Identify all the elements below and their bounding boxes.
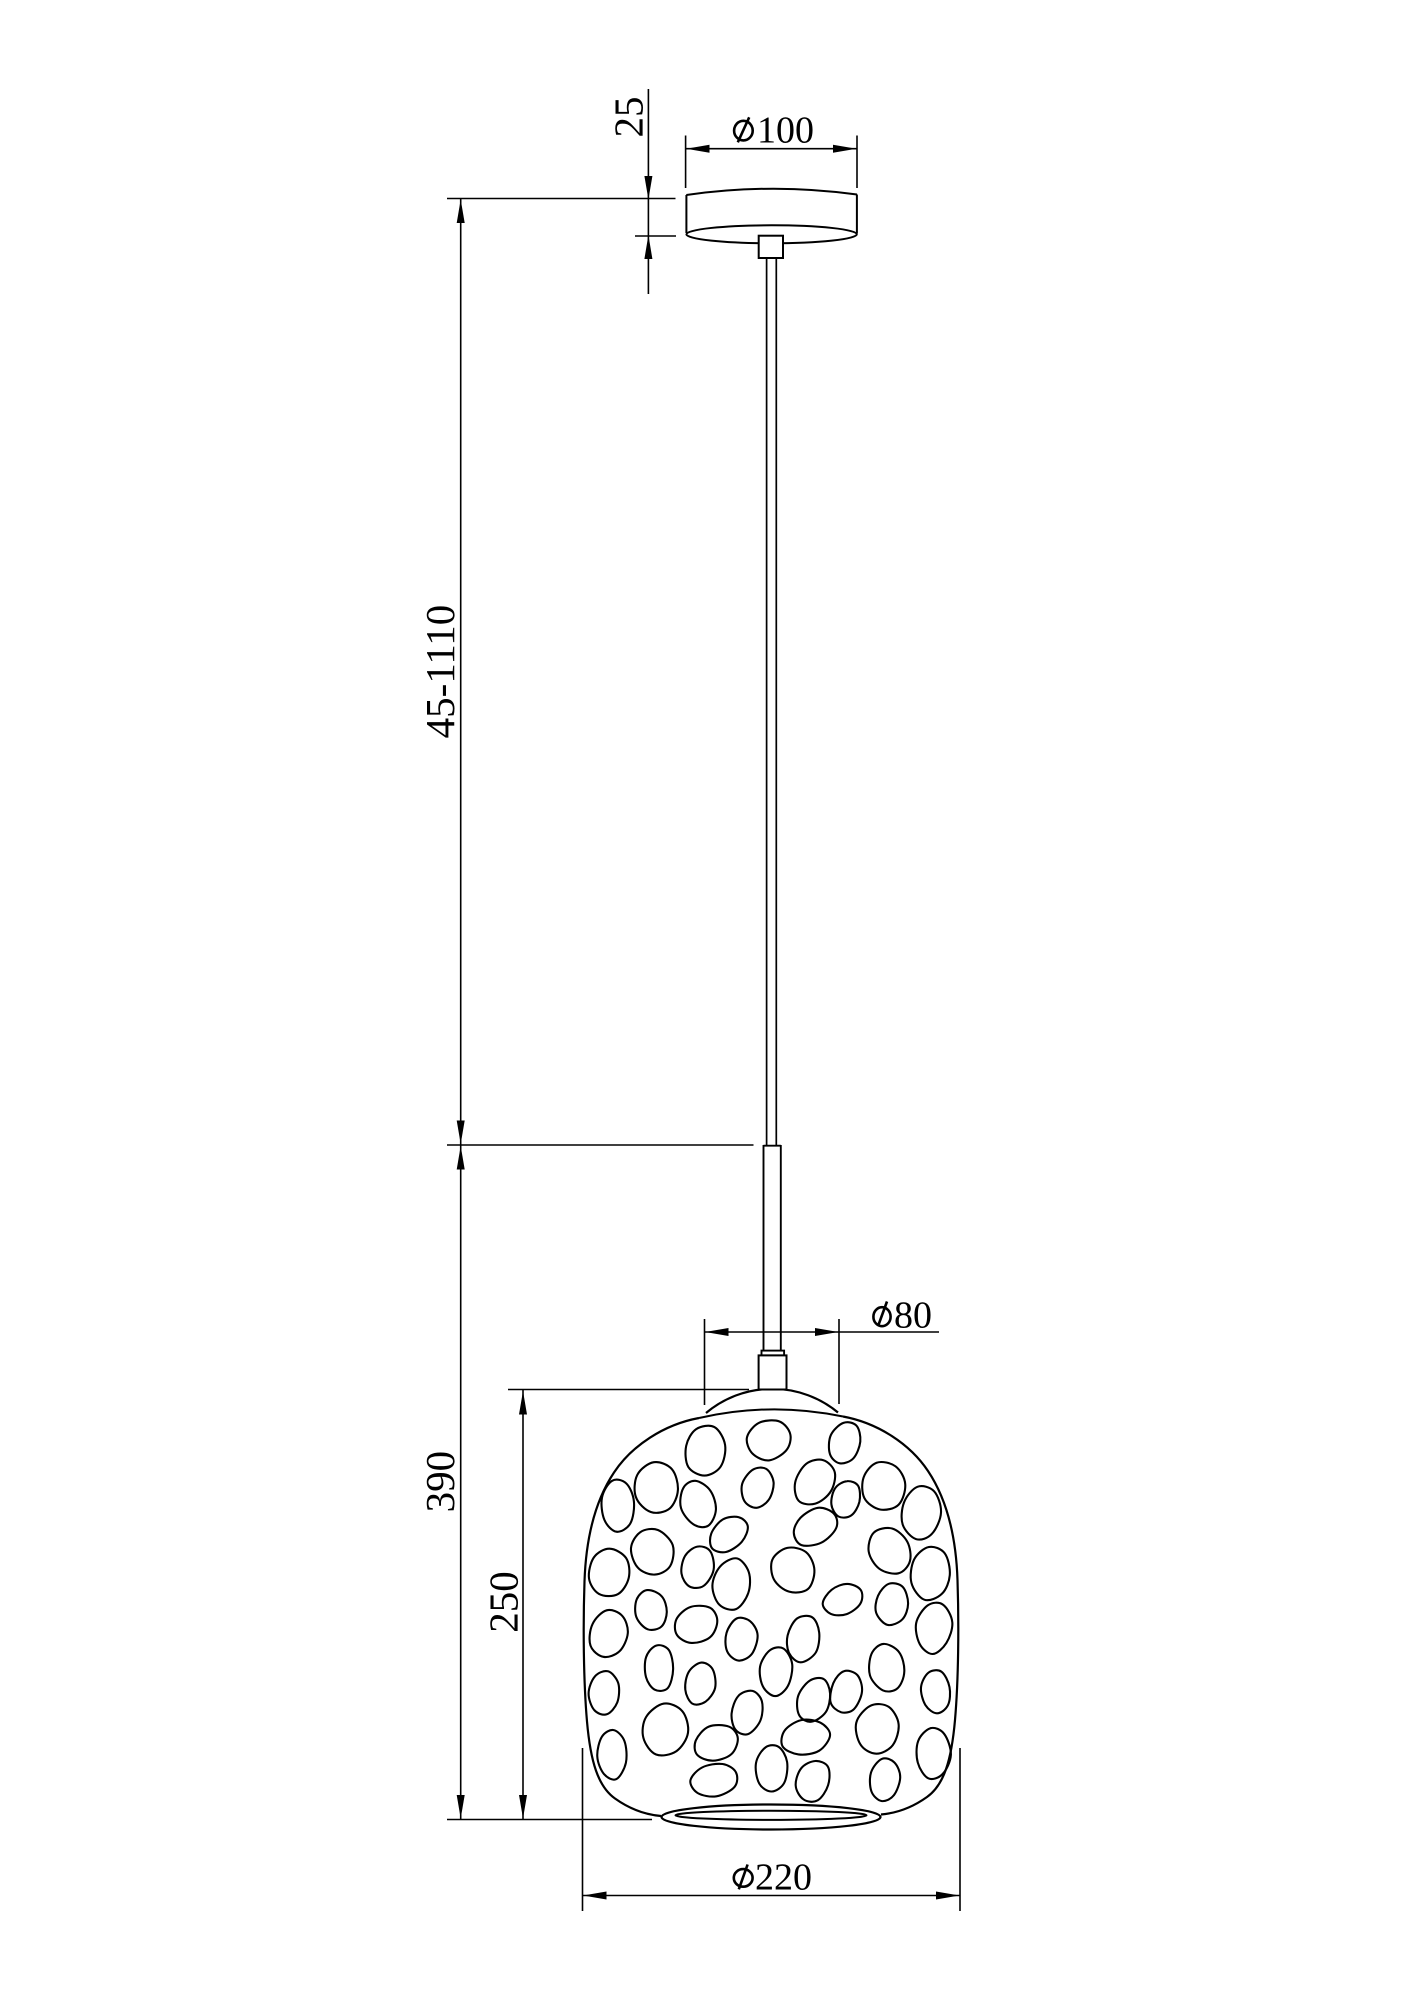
svg-text:220: 220 bbox=[755, 1857, 812, 1899]
svg-text:250: 250 bbox=[481, 1571, 527, 1633]
svg-text:45-1110: 45-1110 bbox=[417, 605, 463, 739]
svg-text:390: 390 bbox=[417, 1451, 463, 1513]
svg-text:25: 25 bbox=[606, 97, 652, 138]
svg-text:80: 80 bbox=[894, 1294, 932, 1336]
svg-text:100: 100 bbox=[757, 110, 814, 152]
